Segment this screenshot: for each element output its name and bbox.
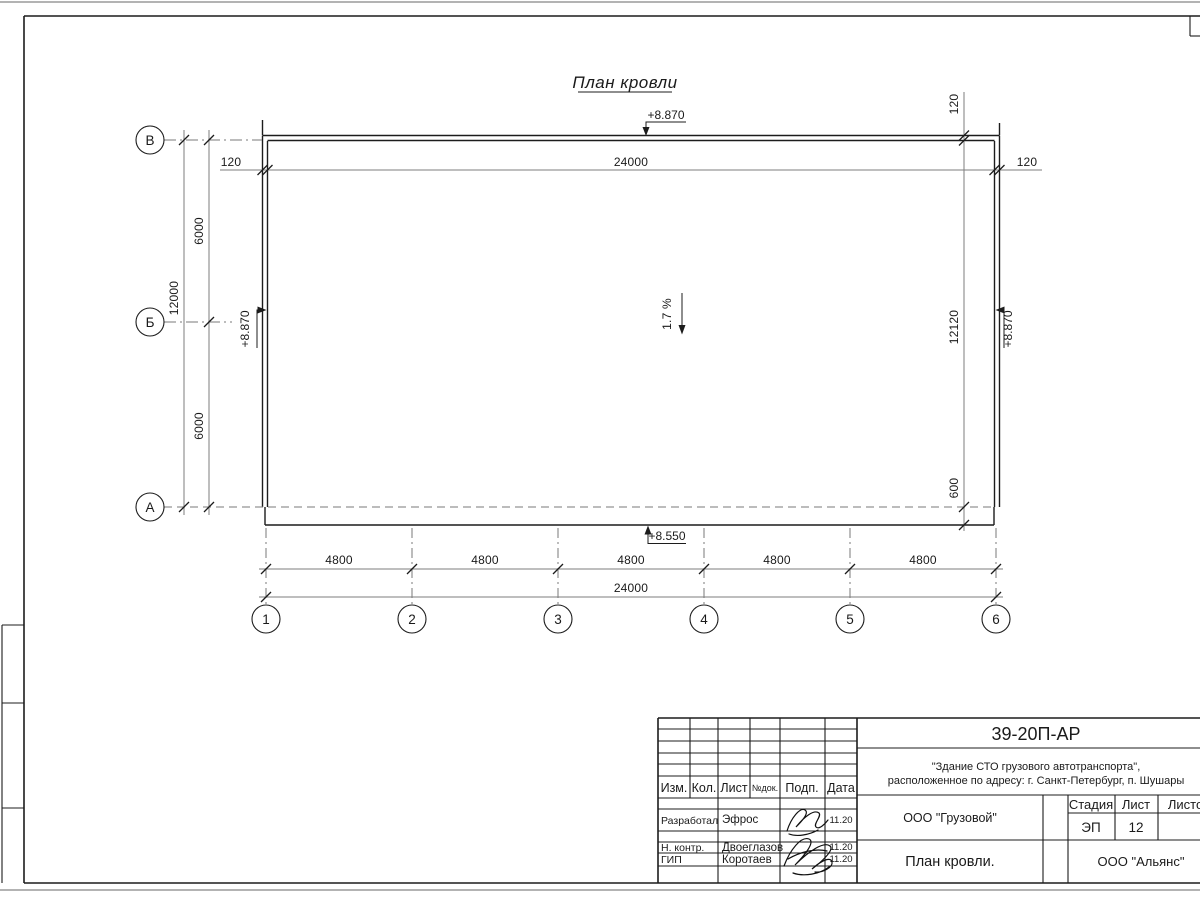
dimension-labels: 120 24000 120 12000 6000 6000 120 12120 … (167, 94, 1037, 595)
tb-sheet-label: Лист (1122, 797, 1150, 812)
axis-col-markers: 1 2 3 4 5 6 (252, 605, 1010, 633)
drawing-sheet: План кровли (0, 0, 1200, 900)
tb-header-izm: Изм. (661, 781, 688, 795)
tb-role-nkontr: Н. контр. (661, 842, 704, 854)
dim-4800-5: 4800 (909, 553, 937, 567)
axis-col-6: 6 (992, 612, 1000, 627)
dim-left-6000-lower: 6000 (192, 412, 206, 440)
axis-col-3: 3 (554, 612, 562, 627)
plan-title: План кровли (572, 73, 677, 92)
tb-name-dvoeglazov: Двоеглазов (722, 842, 783, 854)
axis-col-2: 2 (408, 612, 416, 627)
tb-header-data: Дата (827, 781, 855, 795)
axis-col-5: 5 (846, 612, 854, 627)
dim-left-12000: 12000 (167, 281, 181, 315)
tb-date-razrabotal: 11.20 (829, 815, 852, 826)
tb-header-list: Лист (720, 781, 747, 795)
elevation-mark-top: +8.870 (643, 108, 687, 136)
axis-row-B: Б (146, 315, 155, 330)
elevation-eave-value: +8.550 (648, 529, 685, 543)
axis-row-V: В (145, 133, 154, 148)
elevation-right-value: +8.870 (1001, 310, 1015, 347)
axis-row-markers: В Б А (136, 126, 164, 521)
dim-4800-1: 4800 (325, 553, 353, 567)
tb-role-razrabotal: Разработал (661, 815, 718, 827)
roof-plan-drawing: План кровли (0, 0, 1200, 900)
tb-date-gip: 11.20 (829, 854, 852, 865)
tb-header-podp: Подп. (785, 781, 818, 795)
tb-sheet-title: План кровли. (905, 854, 994, 870)
slope-value: 1.7 % (660, 298, 674, 330)
tb-role-gip: ГИП (661, 854, 682, 866)
axis-lines (164, 140, 996, 605)
dim-right-600: 600 (947, 478, 961, 499)
axis-col-1: 1 (262, 612, 270, 627)
axis-col-4: 4 (700, 612, 708, 627)
dim-top-24000: 24000 (614, 155, 648, 169)
tb-stage-label: Стадия (1069, 797, 1113, 812)
tb-date-nkontr: 11.20 (829, 842, 852, 853)
tb-name-korotaev: Коротаев (722, 854, 772, 866)
elevation-mark-right: +8.870 (996, 307, 1016, 349)
tb-project-line1: "Здание СТО грузового автотранспорта", (932, 761, 1141, 773)
tb-doc-number: 39-20П-АР (992, 724, 1081, 744)
tb-sheet-number: 12 (1128, 820, 1143, 835)
slope-annotation: 1.7 % (660, 293, 686, 335)
tb-org: ООО "Грузовой" (903, 811, 997, 825)
dim-4800-2: 4800 (471, 553, 499, 567)
roof-eave-line (265, 507, 994, 525)
dim-4800-4: 4800 (763, 553, 791, 567)
tb-project-line2: расположенное по адресу: г. Санкт-Петерб… (888, 775, 1185, 787)
tb-header-kol: Кол. (692, 781, 717, 795)
elevation-mark-eave: +8.550 (645, 526, 687, 544)
titleblock-right-part: 39-20П-АР "Здание СТО грузового автотран… (888, 724, 1200, 870)
tb-company: ООО "Альянс" (1098, 854, 1185, 869)
frame-margin-boxes (2, 625, 24, 883)
dim-right-12120: 12120 (947, 310, 961, 344)
axis-row-A: А (145, 500, 154, 515)
frame-corner-box (1190, 16, 1200, 36)
tb-stage-value: ЭП (1081, 820, 1100, 835)
dim-right-120: 120 (947, 94, 961, 115)
dim-top-right-120: 120 (1017, 155, 1038, 169)
elevation-left-value: +8.870 (238, 310, 252, 347)
dim-left-6000-upper: 6000 (192, 217, 206, 245)
tb-header-ndok: №док. (752, 783, 778, 793)
tb-sheets-label: Листов (1168, 797, 1200, 812)
sheet-frame (24, 16, 1200, 883)
tb-name-efros: Эфрос (722, 814, 759, 826)
elevation-top-value: +8.870 (647, 108, 684, 122)
roof-outline (263, 120, 1000, 525)
dim-top-left-120: 120 (221, 155, 242, 169)
dim-bottom-24000: 24000 (614, 581, 648, 595)
dim-4800-3: 4800 (617, 553, 645, 567)
